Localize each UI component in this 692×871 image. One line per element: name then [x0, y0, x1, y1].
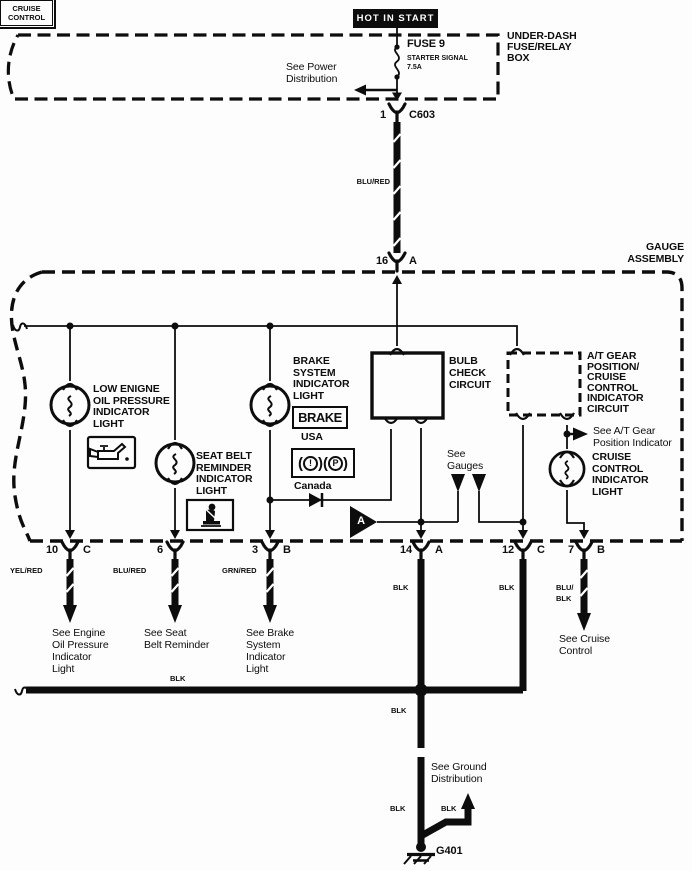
pin-16-label: 16: [360, 256, 388, 268]
diode-icon: [309, 493, 322, 507]
wire-blk-down1-label: BLK: [391, 706, 406, 715]
see-cruise-control-label: See Cruise Control: [559, 633, 610, 657]
see-gauges-label: See Gauges: [447, 448, 483, 472]
wire-blk-branch-label: BLK: [441, 804, 456, 813]
ref-node: [350, 474, 523, 538]
pin-14-label: 14: [384, 545, 412, 557]
cruise-lamp-icon: [550, 452, 584, 486]
bulb-check-box: [372, 349, 443, 539]
indicator-bus: [13, 323, 517, 347]
wiring-diagram: HOT IN START UNDER-DASH FUSE/RELAY BOX F…: [0, 0, 692, 871]
oil-lamp-icon: [51, 386, 89, 424]
wire-blk-down2-label: BLK: [390, 804, 405, 813]
ground-id-label: G401: [436, 846, 463, 858]
cruise-branch: [550, 425, 589, 539]
seat-lamp-icon: [156, 444, 194, 482]
oil-icon: [88, 437, 135, 468]
see-power-distribution-label: See Power Distribution: [286, 61, 337, 85]
see-ground-distribution-label: See Ground Distribution: [431, 761, 487, 785]
pin-7-label: 7: [548, 545, 574, 557]
see-at-gear-label: See A/T Gear Position Indicator: [593, 425, 672, 449]
ground-symbol: [404, 842, 435, 864]
gauge-assembly-label: GAUGE ASSEMBLY: [600, 242, 684, 265]
cruise-light-label: CRUISE CONTROL INDICATOR LIGHT: [592, 452, 648, 498]
cavity-c2-label: C: [537, 545, 545, 557]
see-engine-oil-label: See Engine Oil Pressure Indicator Light: [52, 627, 109, 675]
wire-blu-blk-label: BLU/ BLK: [556, 582, 574, 604]
oil-branch: [51, 326, 135, 539]
usa-label: USA: [301, 432, 323, 444]
pin-6-label: 6: [135, 545, 163, 557]
seat-belt-icon: [187, 500, 233, 530]
fuse-rating: 7.5A: [407, 64, 422, 73]
seat-belt-light-label: SEAT BELT REMINDER INDICATOR LIGHT: [196, 451, 252, 497]
pin-1-label: 1: [358, 110, 386, 122]
fuse-box-label: UNDER-DASH FUSE/RELAY BOX: [507, 31, 577, 64]
schematic-linework: [0, 0, 692, 871]
see-brake-system-label: See Brake System Indicator Light: [246, 627, 294, 675]
cavity-b-label: B: [283, 545, 291, 557]
ref-a-label: A: [351, 516, 371, 528]
brake-badge: BRAKE: [292, 406, 348, 429]
seat-branch: [156, 326, 233, 539]
pin-3-label: 3: [230, 545, 258, 557]
pin-12-label: 12: [486, 545, 514, 557]
cavity-a-label: A: [435, 545, 443, 557]
wire-yel-red-label: YEL/RED: [10, 566, 43, 575]
brake-light-label: BRAKE SYSTEM INDICATOR LIGHT: [293, 356, 349, 402]
wire-blk-14-label: BLK: [393, 583, 408, 592]
cavity-b2-label: B: [597, 545, 605, 557]
feed-wire: [389, 104, 405, 346]
wire-grn-red-label: GRN/RED: [222, 566, 257, 575]
pin-10-label: 10: [30, 545, 58, 557]
bulb-check-label: BULB CHECK CIRCUIT: [449, 355, 491, 391]
paren-icon: ): [343, 456, 348, 471]
exclamation-circle-icon: !: [303, 456, 318, 471]
brake-intl-icon: (!)(P): [291, 448, 355, 478]
oil-pressure-light-label: LOW ENIGNE OIL PRESSURE INDICATOR LIGHT: [93, 384, 170, 430]
see-seat-belt-label: See Seat Belt Reminder: [144, 627, 209, 651]
fuse-desc: STARTER SIGNAL: [407, 55, 468, 64]
brake-lamp-icon: [251, 386, 289, 424]
hot-in-start-badge: HOT IN START: [353, 9, 438, 28]
fuse-name: FUSE 9: [407, 39, 445, 51]
at-circuit-box: [508, 349, 580, 539]
fuse-circuit: [354, 27, 402, 101]
cavity-a-feed-label: A: [409, 256, 417, 268]
connector-c603-label: C603: [409, 110, 435, 122]
wire-blu-red-label: BLU/RED: [113, 566, 146, 575]
wire-blk-12-label: BLK: [499, 583, 514, 592]
canada-label: Canada: [294, 481, 331, 493]
wire-blk-bus-label: BLK: [170, 674, 185, 683]
cavity-c-label: C: [83, 545, 91, 557]
at-circuit-label: A/T GEAR POSITION/ CRUISE CONTROL INDICA…: [587, 351, 643, 414]
park-circle-icon: P: [328, 456, 343, 471]
wire-blu-red-feed-label: BLU/RED: [340, 177, 390, 186]
